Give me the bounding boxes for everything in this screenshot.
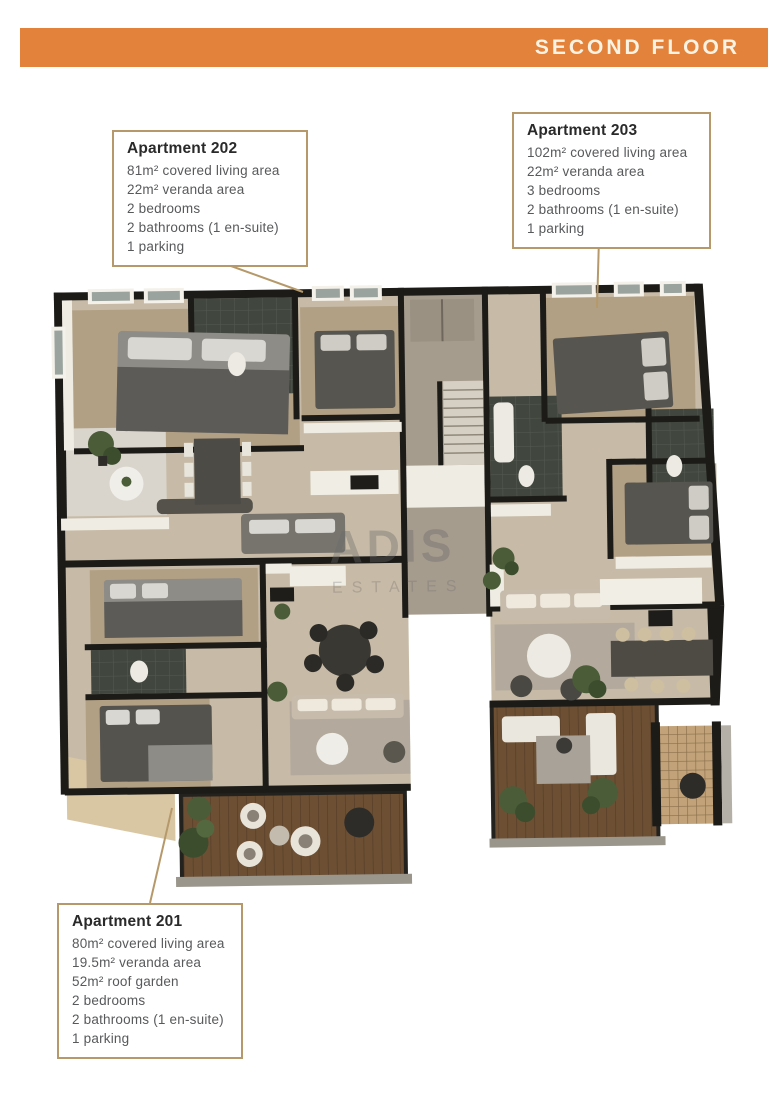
window-icon — [312, 286, 344, 301]
spec-line: 81m² covered living area — [127, 161, 294, 180]
spec-line: 1 parking — [527, 219, 697, 238]
spec-line: 2 bathrooms (1 en-suite) — [127, 218, 294, 237]
spec-line: 2 bedrooms — [127, 199, 294, 218]
bathtub-icon — [493, 402, 514, 462]
floor-plan-group: ADIS ESTATES — [51, 280, 733, 888]
apartment-201-specs: 80m² covered living area19.5m² veranda a… — [72, 934, 229, 1048]
watermark-line1: ADIS — [329, 519, 456, 573]
spec-line: 2 bathrooms (1 en-suite) — [527, 200, 697, 219]
apartment-202-specs: 81m² covered living area22m² veranda are… — [127, 161, 294, 256]
bed-203-b — [625, 481, 714, 544]
spec-line: 1 parking — [127, 237, 294, 256]
page-title: SECOND FLOOR — [535, 36, 740, 60]
window-icon — [660, 281, 686, 296]
window-icon — [552, 282, 596, 298]
spec-line: 2 bedrooms — [72, 991, 229, 1010]
spec-line: 52m² roof garden — [72, 972, 229, 991]
apartment-202-title: Apartment 202 — [127, 140, 294, 158]
spec-line: 22m² veranda area — [527, 162, 697, 181]
apartment-201-title: Apartment 201 — [72, 913, 229, 931]
page: { "header": { "title": "SECOND FLOOR" },… — [0, 0, 768, 1110]
spec-line: 80m² covered living area — [72, 934, 229, 953]
sofa-201 — [289, 694, 410, 776]
window-icon — [88, 289, 134, 305]
bed-202-a — [116, 331, 290, 435]
apartment-203-specs: 102m² covered living area22m² veranda ar… — [527, 143, 697, 238]
window-icon — [51, 327, 66, 379]
bed-202-b — [314, 330, 395, 409]
callout-apartment-203: Apartment 203 102m² covered living area2… — [512, 112, 711, 249]
callout-apartment-202: Apartment 202 81m² covered living area22… — [112, 130, 308, 267]
spec-line: 1 parking — [72, 1029, 229, 1048]
watermark: ADIS ESTATES — [329, 519, 466, 597]
window-icon — [350, 285, 382, 300]
spec-line: 102m² covered living area — [527, 143, 697, 162]
sofa-203 — [500, 589, 610, 621]
watermark-line2: ESTATES — [332, 578, 466, 597]
window-icon — [144, 288, 184, 304]
bed-203-a — [553, 331, 674, 415]
header-bar: SECOND FLOOR — [20, 28, 768, 67]
kitchen-202 — [310, 470, 398, 495]
spec-line: 2 bathrooms (1 en-suite) — [72, 1010, 229, 1029]
spec-line: 22m² veranda area — [127, 180, 294, 199]
callout-apartment-201: Apartment 201 80m² covered living area19… — [57, 903, 243, 1059]
apartment-203-title: Apartment 203 — [527, 122, 697, 140]
bed-201-b — [100, 705, 213, 783]
bed-201-a — [104, 578, 243, 638]
window-icon — [614, 281, 644, 296]
spec-line: 3 bedrooms — [527, 181, 697, 200]
spec-line: 19.5m² veranda area — [72, 953, 229, 972]
